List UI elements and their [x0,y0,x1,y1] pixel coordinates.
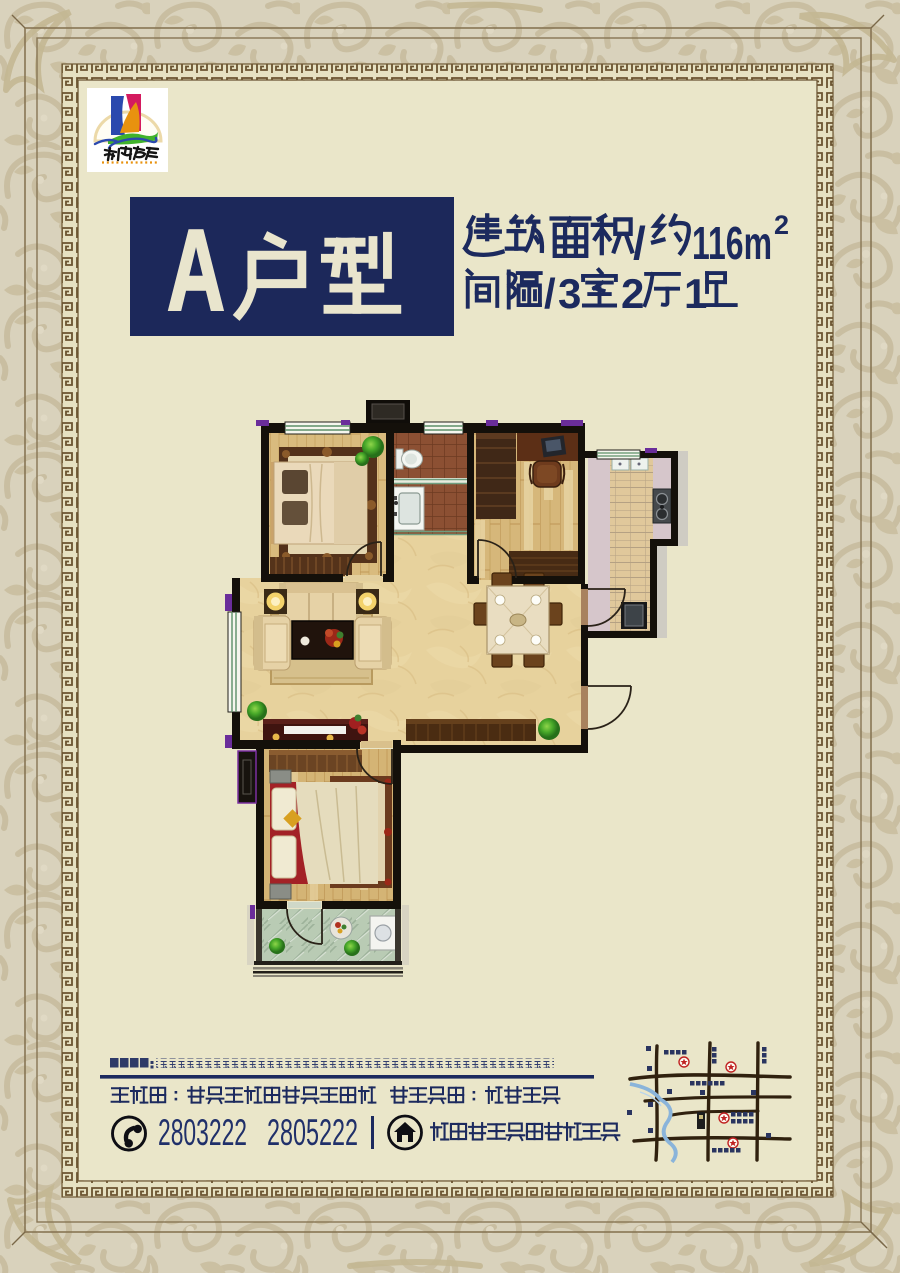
svg-text:A: A [167,207,225,335]
svg-text:3: 3 [558,270,581,317]
svg-text:1: 1 [684,270,707,317]
svg-text:116m: 116m [692,217,772,269]
svg-text:2803222: 2803222 [158,1112,247,1153]
svg-text:2: 2 [774,210,789,240]
svg-text:/: / [633,217,646,269]
svg-text:2805222: 2805222 [267,1112,358,1153]
svg-text:/: / [544,270,556,317]
svg-text:2: 2 [621,270,644,317]
